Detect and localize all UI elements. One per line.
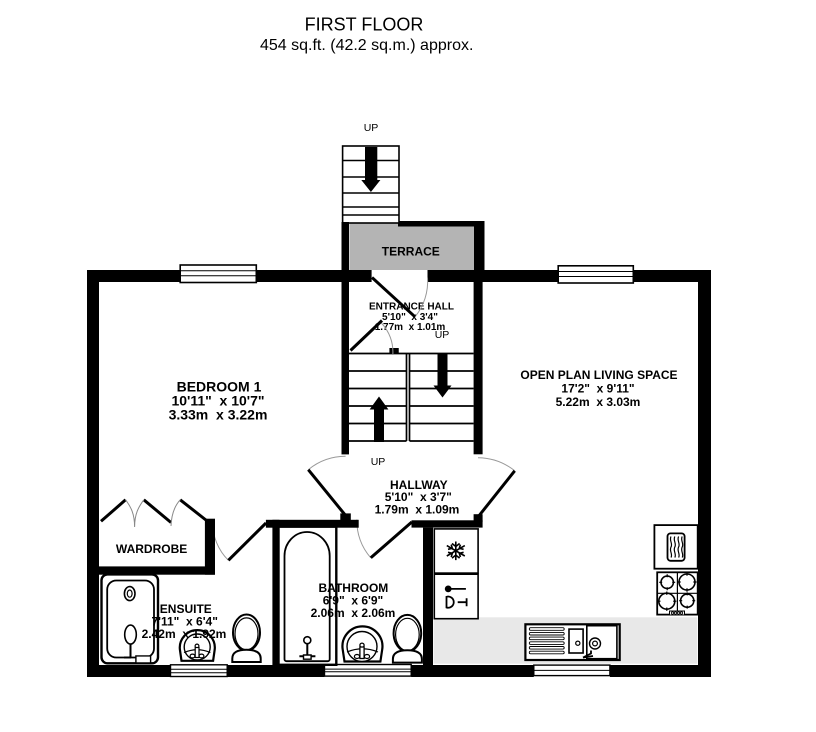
svg-text:2.06m x 2.06m: 2.06m x 2.06m <box>311 606 396 620</box>
svg-text:5.22m x 3.03m: 5.22m x 3.03m <box>556 395 641 409</box>
svg-text:454 sq.ft. (42.2 sq.m.) approx: 454 sq.ft. (42.2 sq.m.) approx. <box>260 37 473 54</box>
svg-text:1.79m x 1.09m: 1.79m x 1.09m <box>375 503 460 517</box>
svg-text:UP: UP <box>371 456 386 468</box>
svg-text:2.42m x 1.92m: 2.42m x 1.92m <box>142 627 227 641</box>
svg-text:TERRACE: TERRACE <box>382 245 440 259</box>
svg-text:17'2" x 9'11": 17'2" x 9'11" <box>561 382 634 396</box>
svg-text:ENTRANCE HALL: ENTRANCE HALL <box>369 302 454 313</box>
svg-text:FIRST FLOOR: FIRST FLOOR <box>305 15 424 35</box>
svg-text:OPEN PLAN LIVING SPACE: OPEN PLAN LIVING SPACE <box>520 368 677 382</box>
svg-text:WARDROBE: WARDROBE <box>116 542 187 556</box>
svg-text:UP: UP <box>435 329 450 341</box>
svg-text:3.33m x 3.22m: 3.33m x 3.22m <box>169 406 268 422</box>
svg-text:UP: UP <box>364 122 379 134</box>
